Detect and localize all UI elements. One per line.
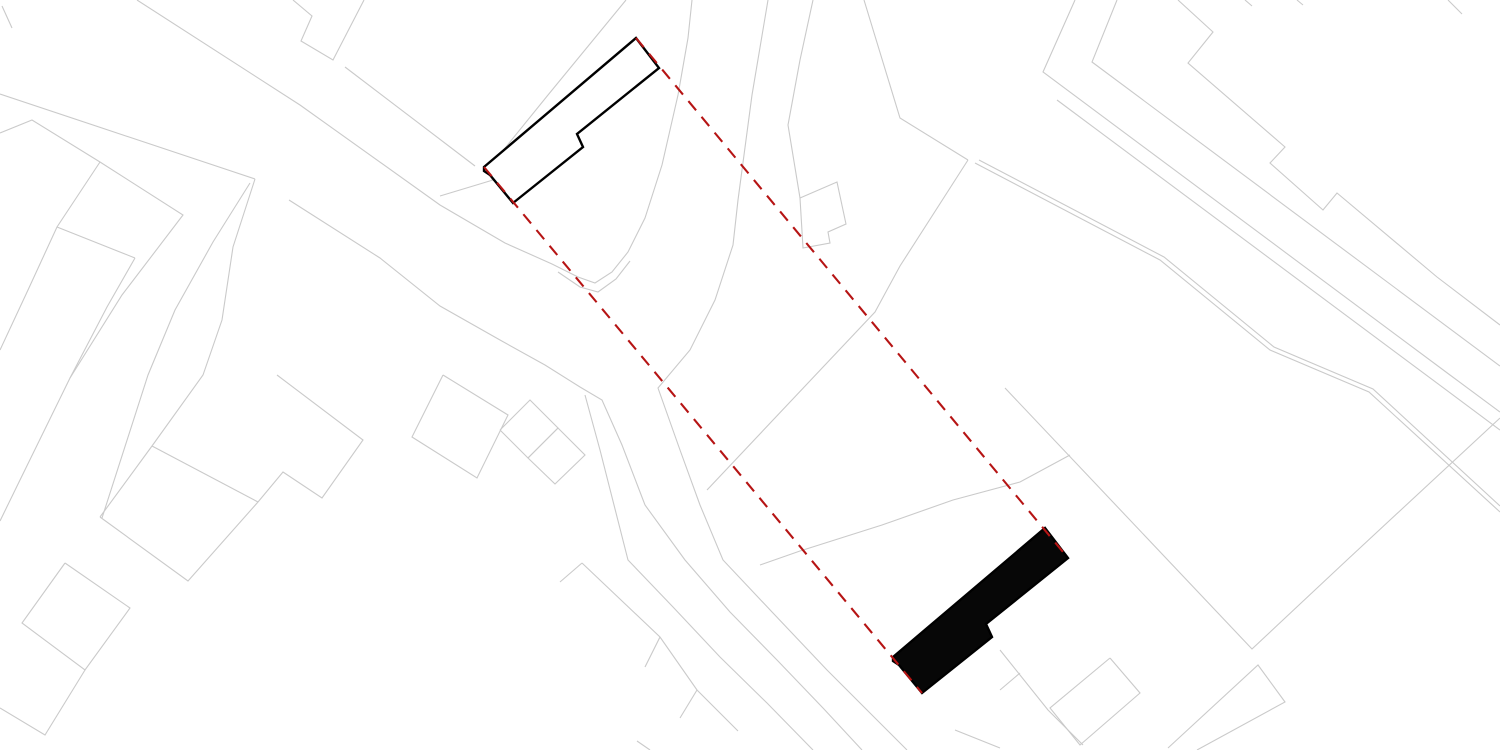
parcel-line bbox=[102, 183, 250, 518]
existing-building-outline bbox=[484, 38, 659, 203]
parcel-line bbox=[864, 0, 968, 160]
proposed-building-footprint bbox=[893, 528, 1068, 693]
parcel-boundary-lines bbox=[0, 0, 1500, 750]
site-plan-page bbox=[0, 0, 1500, 750]
parcel-line bbox=[70, 258, 135, 378]
parcel-line bbox=[100, 375, 363, 581]
parcel-line bbox=[1005, 388, 1500, 649]
parcel-line bbox=[152, 446, 258, 502]
parcel-line bbox=[528, 428, 585, 484]
parcel-line bbox=[707, 160, 968, 490]
parcel-line bbox=[637, 741, 650, 750]
parcel-line bbox=[1297, 0, 1303, 5]
parcel-line bbox=[558, 261, 630, 292]
parcel-line bbox=[289, 200, 862, 750]
parcel-line bbox=[293, 0, 364, 60]
guide-dashed-line bbox=[636, 38, 1068, 558]
parcel-line bbox=[1000, 673, 1020, 690]
site-plan-drawing bbox=[0, 0, 1500, 750]
parcel-line bbox=[955, 730, 1000, 748]
parcel-line bbox=[22, 563, 130, 670]
parcel-line bbox=[560, 563, 582, 582]
parcel-line bbox=[1245, 0, 1252, 6]
parcel-line bbox=[680, 690, 697, 718]
parcel-line bbox=[979, 160, 1500, 506]
parcel-line bbox=[1092, 0, 1500, 366]
parcel-line bbox=[658, 0, 907, 750]
parcel-line bbox=[1050, 658, 1140, 745]
parcel-line bbox=[137, 0, 692, 283]
parcel-line bbox=[645, 637, 660, 667]
proposed-building bbox=[893, 528, 1068, 693]
parcel-line bbox=[0, 670, 85, 735]
parcel-line bbox=[0, 94, 255, 179]
parcel-line bbox=[0, 162, 100, 350]
parcel-line bbox=[500, 400, 558, 458]
parcel-line bbox=[1000, 650, 1083, 745]
parcel-line bbox=[975, 163, 1500, 512]
parcel-line bbox=[1448, 0, 1462, 14]
parcel-line bbox=[412, 375, 508, 478]
parcel-line bbox=[2, 6, 12, 28]
parcel-line bbox=[57, 227, 135, 258]
parcel-line bbox=[440, 180, 493, 196]
parcel-line bbox=[800, 182, 846, 248]
parcel-line bbox=[1057, 100, 1500, 430]
parcel-line bbox=[1168, 665, 1285, 750]
guide-dashed-line bbox=[484, 167, 922, 693]
parcel-line bbox=[585, 395, 813, 750]
parcel-line bbox=[788, 0, 813, 198]
parcel-line bbox=[0, 120, 183, 521]
existing-building bbox=[484, 38, 659, 203]
parcel-line bbox=[100, 179, 255, 517]
parcel-line bbox=[582, 563, 738, 731]
